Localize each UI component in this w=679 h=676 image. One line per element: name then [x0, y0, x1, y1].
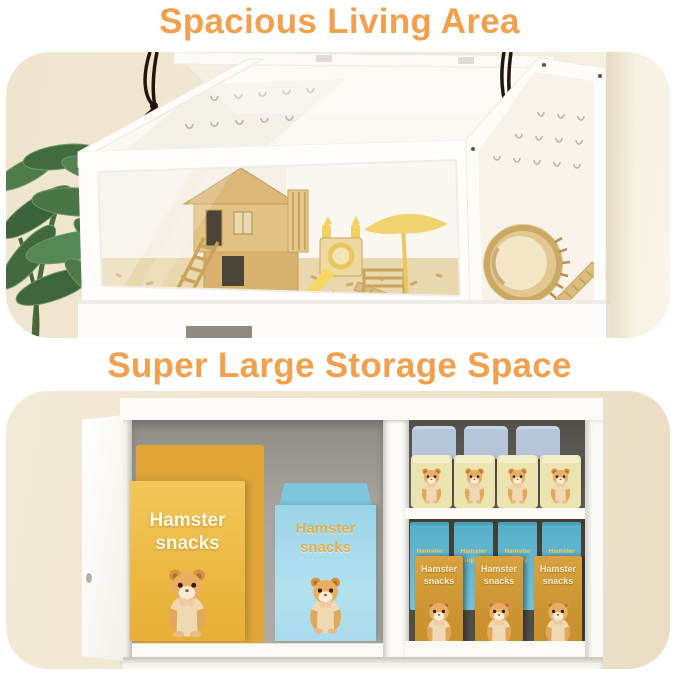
snack-box-orange: Hamstersnacks — [534, 556, 582, 653]
hamster-illustration — [304, 573, 347, 635]
cabinet-right-frame — [585, 420, 603, 663]
lid-cord-left — [145, 52, 158, 116]
cage-stand — [78, 300, 610, 338]
canister-lid — [499, 455, 536, 463]
snack-box-orange: Hamstersnacks — [475, 556, 523, 653]
center-divider — [383, 420, 409, 663]
canister-lid — [456, 455, 493, 463]
snack-bag-blue: Hamster snacks — [273, 483, 378, 641]
canister-cream — [497, 455, 538, 508]
bottom-shelf-right — [405, 641, 589, 657]
snack-box-orange: Hamstersnacks — [415, 556, 463, 653]
canister-cream — [540, 455, 581, 508]
bag-label: Hamster snacks — [130, 509, 245, 555]
living-area-title: Spacious Living Area — [0, 1, 679, 43]
middle-shelf — [405, 508, 589, 519]
bag-label: Hamster snacks — [275, 519, 376, 557]
living-area-photo — [6, 52, 670, 338]
canister-cream — [454, 455, 495, 508]
storage-space-title: Super Large Storage Space — [0, 345, 679, 387]
canister-cream — [411, 455, 452, 508]
box-label: Hamstersnacks — [475, 563, 523, 587]
product-infographic: Spacious Living Area — [0, 0, 679, 676]
door-handle — [86, 573, 92, 583]
hamster-illustration — [504, 465, 531, 505]
cabinet-top-panel — [120, 398, 603, 422]
hamster-illustration — [418, 465, 445, 505]
hamster-in-wheel — [669, 265, 670, 338]
open-cabinet-door — [82, 415, 123, 661]
canister-lid — [413, 455, 450, 463]
hamster-illustration — [161, 565, 213, 638]
box-label: Hamstersnacks — [534, 563, 582, 587]
box-label: Hamstersnacks — [415, 563, 463, 587]
snack-bag-yellow: Hamster snacks — [130, 481, 245, 641]
wall-shading — [606, 52, 636, 338]
bag-body: Hamster snacks — [275, 505, 376, 641]
storage-photo: Hamster snacks Hamster snacks — [6, 391, 670, 669]
hamster-illustration — [461, 465, 488, 505]
cabinet-base — [120, 657, 603, 669]
hamster-illustration — [547, 465, 574, 505]
cage-scene — [6, 52, 670, 338]
canister-lid — [542, 455, 579, 463]
